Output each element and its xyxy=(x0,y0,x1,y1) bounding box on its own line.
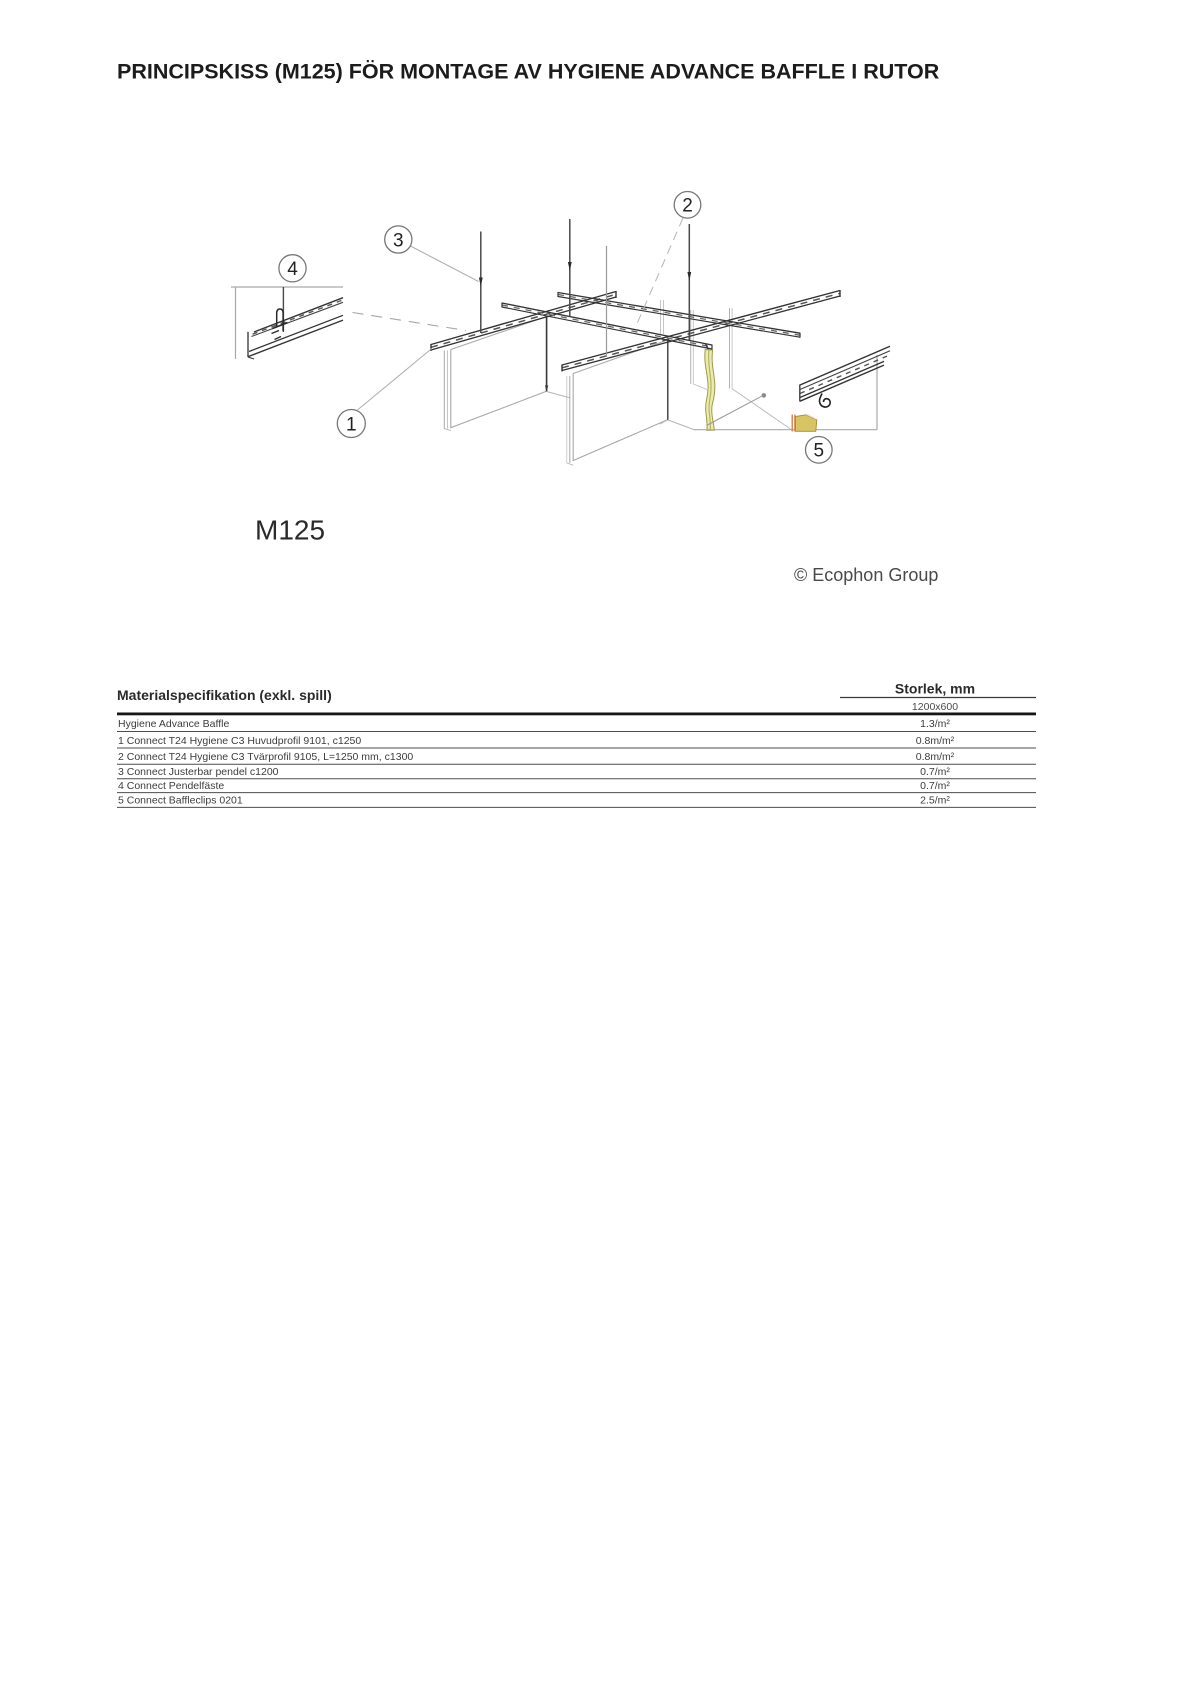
svg-text:4 Connect Pendelfäste: 4 Connect Pendelfäste xyxy=(118,780,224,792)
svg-text:2.5/m²: 2.5/m² xyxy=(920,795,950,807)
svg-text:0.7/m²: 0.7/m² xyxy=(920,766,950,778)
svg-text:0.8m/m²: 0.8m/m² xyxy=(916,751,955,763)
svg-text:1: 1 xyxy=(346,414,357,435)
svg-text:2 Connect T24 Hygiene C3 Tvärp: 2 Connect T24 Hygiene C3 Tvärprofil 9105… xyxy=(118,751,413,763)
svg-text:PRINCIPSKISS (M125) FÖR MONTAG: PRINCIPSKISS (M125) FÖR MONTAGE AV HYGIE… xyxy=(117,59,940,84)
svg-text:1200x600: 1200x600 xyxy=(912,701,958,713)
svg-text:Storlek, mm: Storlek, mm xyxy=(895,681,975,697)
svg-text:2: 2 xyxy=(682,196,693,217)
svg-text:© Ecophon Group: © Ecophon Group xyxy=(794,565,938,585)
svg-text:0.7/m²: 0.7/m² xyxy=(920,780,950,792)
svg-text:0.8m/m²: 0.8m/m² xyxy=(916,735,955,747)
svg-text:5 Connect Baffleclips 0201: 5 Connect Baffleclips 0201 xyxy=(118,795,243,807)
svg-text:1 Connect T24 Hygiene C3 Huvud: 1 Connect T24 Hygiene C3 Huvudprofil 910… xyxy=(118,735,361,747)
svg-text:5: 5 xyxy=(814,441,825,462)
svg-text:M125: M125 xyxy=(255,515,325,546)
svg-text:Materialspecifikation (exkl. s: Materialspecifikation (exkl. spill) xyxy=(117,687,332,703)
svg-text:3: 3 xyxy=(393,230,404,251)
svg-text:1.3/m²: 1.3/m² xyxy=(920,718,950,730)
svg-text:3 Connect Justerbar pendel c12: 3 Connect Justerbar pendel c1200 xyxy=(118,766,279,778)
svg-text:Hygiene Advance Baffle: Hygiene Advance Baffle xyxy=(118,718,229,730)
svg-text:4: 4 xyxy=(287,259,298,280)
